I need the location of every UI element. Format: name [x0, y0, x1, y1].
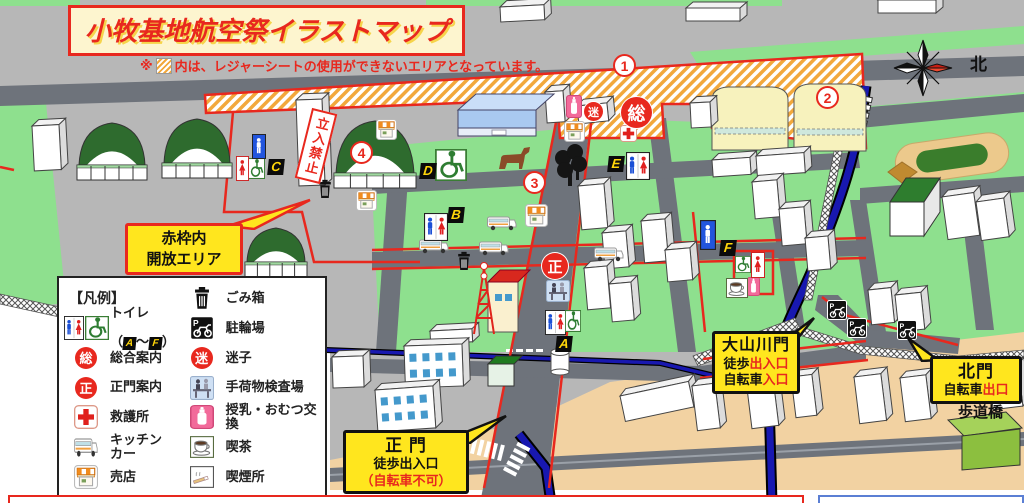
info-circle-icon: 迷: [191, 347, 213, 369]
legend-item: 喫煙所: [185, 462, 321, 492]
wheelchair-icon: [735, 256, 751, 273]
leisure-hatch-swatch: [156, 58, 172, 74]
area-number-1: 1: [613, 54, 636, 77]
info-circle-icon: 総: [621, 97, 652, 128]
legend-item: ごみ箱: [185, 283, 321, 313]
north-gate-label: 北門 自転車出口: [930, 356, 1022, 404]
page-title: 小牧基地航空祭イラストマップ: [85, 16, 448, 46]
cafe-icon: [726, 278, 748, 298]
svg-text:P: P: [900, 324, 905, 331]
wheelchair-icon: [85, 316, 109, 340]
leisure-sheet-note: ※ 内は、レジャーシートの使用ができないエリアとなっています。: [140, 56, 548, 75]
smoking-icon: [190, 465, 214, 489]
shop-icon: [525, 204, 548, 227]
trees-icon: [551, 144, 589, 188]
nursing-icon: [566, 95, 582, 118]
kitchen-car-icon: [479, 239, 509, 257]
area-number-4: 4: [350, 141, 373, 164]
toilet-f-icon: [751, 252, 765, 278]
toilet-icon: [69, 316, 103, 340]
aid-icon: [74, 405, 98, 429]
legend-item: 迷迷子: [185, 343, 321, 373]
toilet-f-icon: [236, 156, 249, 181]
info-circle-icon: 迷: [584, 102, 603, 121]
main-gate-label: 正 門 徒歩出入口 （自転車不可）: [343, 430, 469, 494]
trash-icon: [190, 286, 214, 310]
footbridge-label: 歩道橋: [958, 401, 1003, 422]
toilet-marker-d: D: [419, 163, 437, 179]
nursing-icon: [190, 405, 214, 429]
marker-f-chip: F: [148, 337, 162, 350]
open-area-label: 赤枠内 開放エリア: [125, 223, 243, 275]
legend-item: P駐輪場: [185, 313, 321, 343]
wheelchair-icon: [565, 310, 581, 332]
toilet-mf-icon: [424, 213, 448, 241]
toilet-mf-icon: [64, 316, 84, 340]
toilet-marker-e: E: [607, 156, 625, 172]
legend-item: 手荷物検査場: [185, 373, 321, 403]
area-number-3: 3: [523, 171, 546, 194]
bottom-note-box-blue: [818, 495, 1024, 503]
toilet-mf-icon: [545, 310, 566, 335]
note-text: 内は、レジャーシートの使用ができないエリアとなっています。: [175, 56, 549, 75]
illustrated-map: ABCDEF1234総迷正PPP 小牧基地航空祭イラストマップ ※ 内は、レジャ…: [0, 0, 1024, 503]
nursing-icon: [747, 277, 760, 296]
toilet-mf-icon: [626, 152, 650, 180]
legend-left-column: 【凡例】 トイレ （A～F） 総総合案内正正門案内救護所キッチン カー売店: [69, 283, 185, 492]
toilet-m-icon: [252, 134, 266, 159]
svg-text:P: P: [193, 318, 199, 328]
bottom-note-box-red: [8, 495, 804, 503]
bike-icon: P: [190, 316, 214, 340]
legend-box: 【凡例】 トイレ （A～F） 総総合案内正正門案内救護所キッチン カー売店 ごみ…: [57, 276, 327, 499]
kitchen-car-icon: [487, 214, 517, 232]
wheelchair-icon: [248, 158, 265, 179]
baggage-icon: [190, 376, 214, 400]
toilet-marker-f: F: [719, 240, 737, 256]
toilet-marker-b: B: [447, 207, 465, 223]
dog-icon: [495, 145, 533, 171]
shop-icon: [74, 465, 98, 489]
legend-right-column: ごみ箱P駐輪場迷迷子手荷物検査場授乳・おむつ交換喫茶喫煙所: [185, 283, 321, 492]
bike-icon: P: [847, 318, 867, 338]
toilet-m-icon: [700, 220, 716, 250]
toilet-marker-a: A: [555, 336, 573, 352]
oyamakawa-gate-label: 大山川門 徒歩出入口 自転車入口: [712, 331, 800, 394]
info-circle-icon: 正: [542, 253, 568, 279]
baggage-icon: [546, 280, 570, 302]
wheelchair-icon: [435, 149, 467, 181]
trash-icon: [456, 251, 472, 271]
note-mark: ※: [140, 58, 153, 74]
info-circle-icon: 正: [75, 377, 97, 399]
north-label: 北: [970, 50, 987, 75]
compass-rose-icon: [893, 36, 955, 98]
marker-a-chip: A: [122, 337, 136, 350]
cafe-icon: [190, 435, 214, 459]
legend-item: 売店: [69, 462, 185, 492]
legend-item-toilet: トイレ （A～F）: [69, 313, 185, 343]
legend-item: 授乳・おむつ交換: [185, 402, 321, 432]
legend-item: 正正門案内: [69, 373, 185, 403]
map-title-banner: 小牧基地航空祭イラストマップ: [68, 5, 465, 56]
shop-icon: [376, 119, 397, 140]
kitchen-car-icon: [594, 245, 624, 263]
svg-text:P: P: [830, 304, 835, 311]
kitchen-car-icon: [74, 435, 98, 459]
info-circle-icon: 総: [75, 347, 97, 369]
svg-text:P: P: [850, 322, 855, 329]
bike-icon: P: [827, 300, 847, 320]
toilet-marker-c: C: [267, 159, 285, 175]
legend-item: 救護所: [69, 402, 185, 432]
legend-item: 喫茶: [185, 432, 321, 462]
shop-icon: [564, 121, 585, 142]
legend-item: キッチン カー: [69, 432, 185, 462]
area-number-2: 2: [816, 86, 839, 109]
shop-icon: [356, 190, 377, 211]
